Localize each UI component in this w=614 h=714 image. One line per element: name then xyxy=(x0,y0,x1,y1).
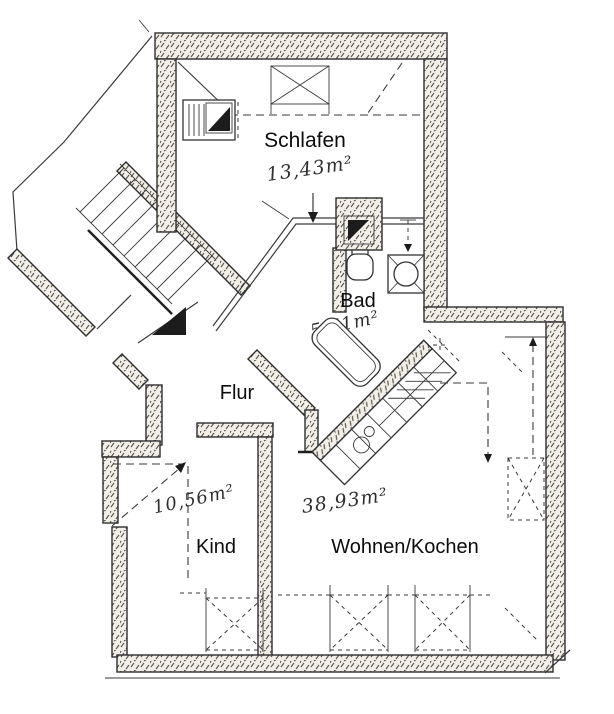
height-marker xyxy=(400,220,416,252)
stairwell-outline xyxy=(13,36,152,251)
toilet xyxy=(347,250,373,280)
wall-bottom xyxy=(117,655,553,672)
stairwell-annex xyxy=(8,20,250,389)
floor-plan-page: Schlafen 13,43m² Bad 5,61m² xyxy=(0,0,614,714)
window-bottom-1 xyxy=(180,588,263,652)
floorplan-svg: Schlafen 13,43m² Bad 5,61m² xyxy=(0,0,614,714)
area-label-schlafen: 13,43m² xyxy=(265,152,354,186)
wall-right xyxy=(424,59,447,310)
wall-wohnen-east xyxy=(546,322,565,660)
wall-left xyxy=(157,59,176,232)
stair-outer-wall xyxy=(8,249,95,336)
corner-tick xyxy=(139,20,149,32)
room-label-kind: Kind xyxy=(196,536,236,558)
sink-fixture xyxy=(388,255,424,293)
room-kind: Kind 10,56m² xyxy=(102,423,273,657)
wall-kind-west-lower xyxy=(112,527,127,657)
wall-kind-west-upper xyxy=(103,457,118,523)
room-label-wohnen: Wohnen/Kochen xyxy=(331,536,479,558)
wall-kind-north xyxy=(197,423,273,437)
bad-chimney-block xyxy=(336,198,382,250)
room-label-schlafen: Schlafen xyxy=(264,129,346,152)
chimney-fixture xyxy=(183,100,235,140)
window-right xyxy=(508,458,544,520)
area-label-wohnen: 38,93m² xyxy=(300,484,389,518)
wall-kind-step xyxy=(102,441,160,457)
wall-flur-southeast xyxy=(248,350,315,417)
room-label-flur: Flur xyxy=(220,382,255,404)
wall-stub xyxy=(305,410,318,452)
area-label-kind: 10,56m² xyxy=(151,481,236,519)
stair-inner-wall xyxy=(117,162,250,295)
entrance-door-leaf xyxy=(97,295,131,329)
wall-kind-east xyxy=(258,437,272,657)
skylight-window xyxy=(271,66,329,114)
wall-top xyxy=(155,33,447,59)
wall-wohnen-north xyxy=(424,307,563,322)
wall-flur-west xyxy=(146,385,162,445)
window-bottom-2 xyxy=(278,585,388,652)
window-bottom-3 xyxy=(388,585,492,652)
stair-outer-wall-2 xyxy=(113,354,148,389)
hip-line-dashed xyxy=(368,63,402,113)
